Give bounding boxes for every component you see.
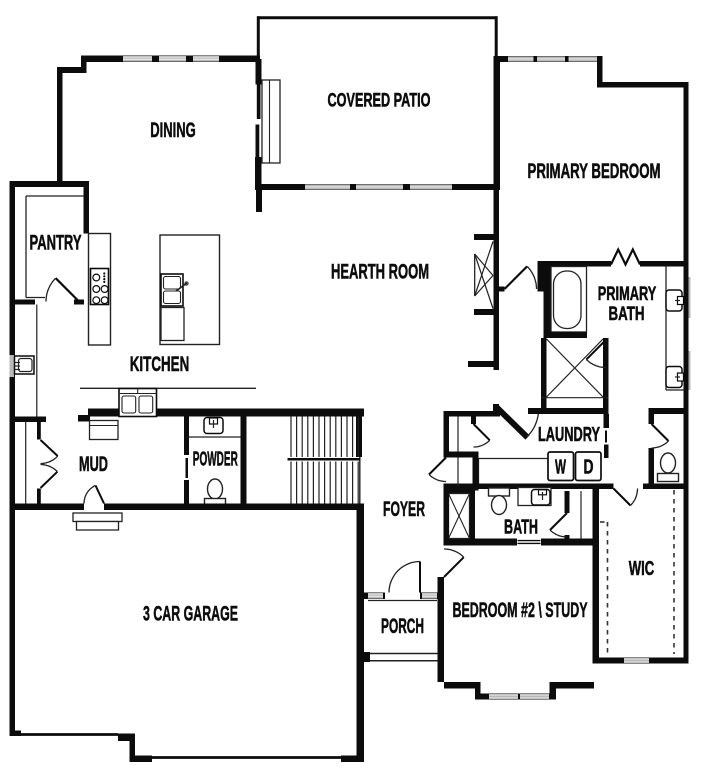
svg-text:D: D [584,457,594,479]
svg-text:BATH: BATH [609,303,645,325]
svg-text:COVERED PATIO: COVERED PATIO [328,90,431,112]
svg-text:FOYER: FOYER [383,497,425,521]
svg-text:W: W [555,457,566,479]
svg-text:WIC: WIC [629,558,655,580]
svg-text:PRIMARY BEDROOM: PRIMARY BEDROOM [528,159,661,183]
svg-text:BEDROOM #2 \ STUDY: BEDROOM #2 \ STUDY [453,598,588,622]
svg-text:PORCH: PORCH [381,615,424,638]
svg-text:LAUNDRY: LAUNDRY [538,424,600,446]
svg-text:POWDER: POWDER [193,448,238,470]
svg-text:PRIMARY: PRIMARY [598,283,657,305]
svg-text:DINING: DINING [150,118,196,142]
svg-text:3 CAR GARAGE: 3 CAR GARAGE [143,603,238,626]
svg-text:HEARTH ROOM: HEARTH ROOM [331,260,429,284]
svg-text:KITCHEN: KITCHEN [130,352,190,376]
svg-text:PANTRY: PANTRY [30,231,82,255]
svg-text:MUD: MUD [79,452,108,476]
svg-text:BATH: BATH [504,516,538,539]
